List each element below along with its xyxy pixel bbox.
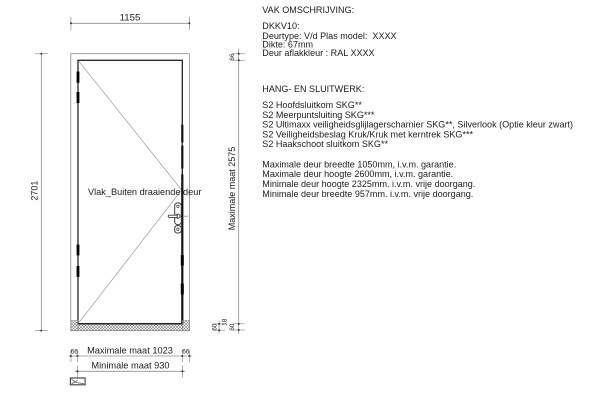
svg-text:1155: 1155 [120, 13, 141, 24]
svg-text:Maximale deur hoogte 2600mm, i: Maximale deur hoogte 2600mm, i.v.m. gara… [262, 169, 453, 179]
svg-text:18: 18 [222, 318, 229, 326]
svg-text:S2 Meerpuntsluiting SKG***: S2 Meerpuntsluiting SKG*** [262, 110, 375, 120]
svg-text:66: 66 [229, 53, 236, 61]
svg-text:HANG- EN SLUITWERK:: HANG- EN SLUITWERK: [262, 84, 364, 94]
svg-text:Maximale maat 2575: Maximale maat 2575 [227, 147, 237, 231]
svg-text:Minimale deur breedte 957mm. i: Minimale deur breedte 957mm. i.v.m. vrij… [262, 189, 473, 199]
svg-text:Deur aflakkleur : RAL XXXX: Deur aflakkleur : RAL XXXX [262, 48, 374, 58]
svg-text:Vlak_Buiten draaiende deur: Vlak_Buiten draaiende deur [88, 187, 201, 197]
svg-text:66: 66 [182, 348, 190, 355]
svg-text:VAK OMSCHRIJVING:: VAK OMSCHRIJVING: [262, 5, 354, 15]
svg-text:Maximale maat 1023: Maximale maat 1023 [87, 345, 173, 355]
svg-text:Minimale maat 930: Minimale maat 930 [91, 361, 169, 371]
svg-text:S2 Haakschoot sluitkom SKG**: S2 Haakschoot sluitkom SKG** [262, 139, 388, 149]
svg-text:S2 Veiligheidsbeslag Kruk/Kruk: S2 Veiligheidsbeslag Kruk/Kruk met kernt… [262, 129, 473, 139]
svg-text:60: 60 [229, 323, 236, 331]
svg-text:Minimale deur hoogte 2325mm. i: Minimale deur hoogte 2325mm. i.v.m. vrij… [262, 179, 475, 189]
svg-text:60: 60 [211, 323, 218, 331]
svg-text:66: 66 [71, 348, 79, 355]
svg-text:2701: 2701 [30, 181, 40, 201]
svg-text:S2 Hoofdsluitkom SKG**: S2 Hoofdsluitkom SKG** [262, 100, 362, 110]
svg-text:Maximale deur breedte 1050mm,: Maximale deur breedte 1050mm, i.v.m. gar… [262, 159, 456, 169]
svg-text:DKKV10:: DKKV10: [262, 21, 299, 31]
svg-text:S2 Ultimaxx veiligheidsglijlag: S2 Ultimaxx veiligheidsglijlagerscharnie… [262, 120, 573, 130]
